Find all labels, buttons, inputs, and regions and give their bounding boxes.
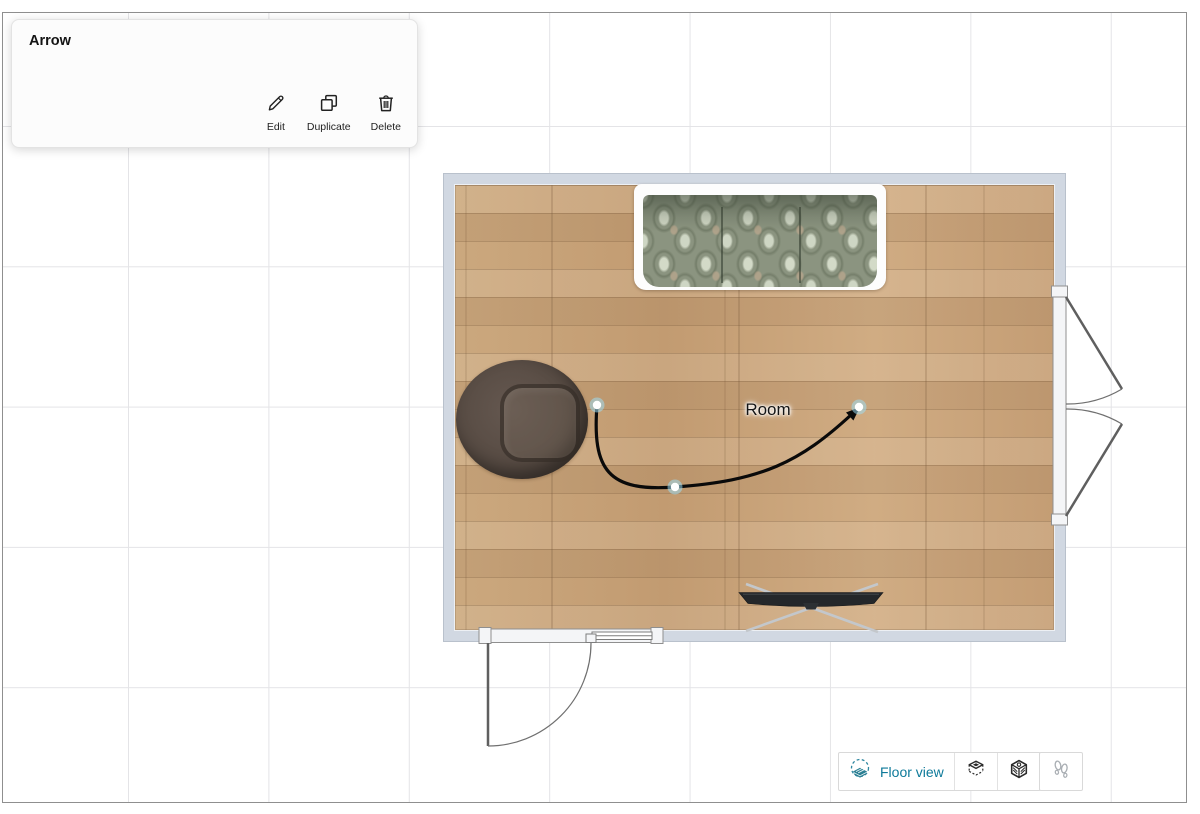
arrow-handle-mid — [668, 480, 683, 495]
delete-label: Delete — [371, 121, 401, 133]
iso-cube-icon — [1008, 758, 1030, 785]
floor-view-label: Floor view — [880, 764, 944, 780]
duplicate-button[interactable]: Duplicate — [305, 90, 353, 135]
footprints-icon — [1050, 757, 1072, 786]
trash-icon — [375, 92, 397, 117]
edit-label: Edit — [267, 121, 285, 133]
walk-mode-button[interactable] — [1039, 752, 1083, 791]
3d-box-view-button[interactable] — [955, 753, 997, 790]
sofa-seam — [721, 207, 723, 283]
arrow-handle-start — [590, 398, 605, 413]
sofa-seam — [799, 207, 801, 283]
armchair-cushion — [500, 384, 580, 462]
panel-title: Arrow — [29, 33, 71, 49]
floor-planner-app: Room Arrow Edit — [0, 0, 1200, 814]
edit-button[interactable]: Edit — [263, 90, 289, 135]
delete-button[interactable]: Delete — [369, 90, 403, 135]
sofa-cushions — [643, 195, 877, 287]
room-annotation-label[interactable]: Room — [726, 400, 810, 420]
view-toolbar: Floor view — [838, 752, 1041, 791]
arrow-handle-end — [852, 400, 867, 415]
duplicate-label: Duplicate — [307, 121, 351, 133]
pencil-icon — [265, 92, 287, 117]
sofa[interactable] — [634, 184, 886, 290]
duplicate-icon — [318, 92, 340, 117]
panel-actions: Edit Duplicate — [263, 90, 403, 135]
floor-view-button[interactable]: Floor view — [839, 753, 954, 790]
3d-orbit-view-button[interactable] — [998, 753, 1040, 790]
armchair[interactable] — [456, 360, 588, 479]
floor-view-icon — [849, 758, 872, 786]
arrow-selection-panel: Arrow Edit Duplicate — [11, 19, 418, 148]
3d-box-icon — [965, 758, 987, 785]
